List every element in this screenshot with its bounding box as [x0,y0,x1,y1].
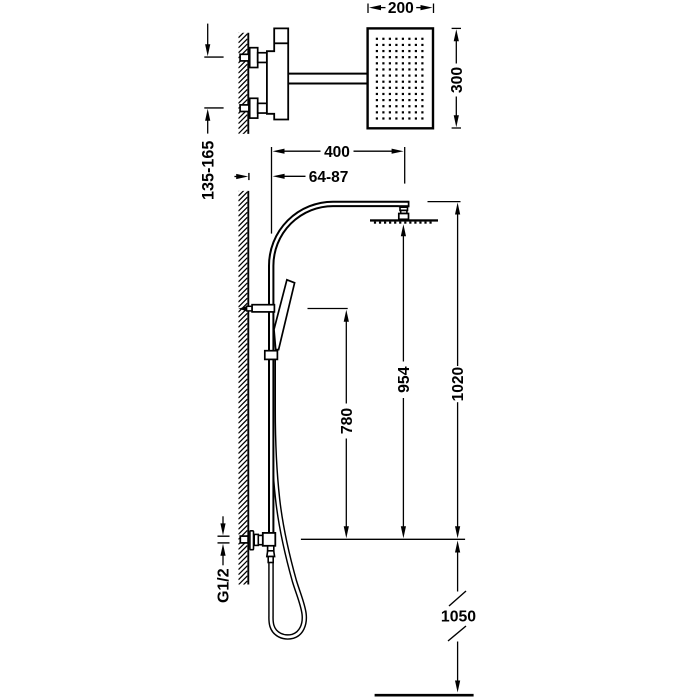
svg-text:200: 200 [388,0,414,17]
svg-text:1020: 1020 [450,367,467,401]
svg-text:G1/2: G1/2 [216,568,233,603]
svg-text:64-87: 64-87 [309,169,349,186]
svg-text:1050: 1050 [441,609,476,626]
svg-text:135-165: 135-165 [200,141,218,200]
svg-text:300: 300 [449,67,466,94]
svg-text:400: 400 [324,144,350,161]
svg-text:780: 780 [339,408,356,435]
svg-text:954: 954 [396,366,413,393]
